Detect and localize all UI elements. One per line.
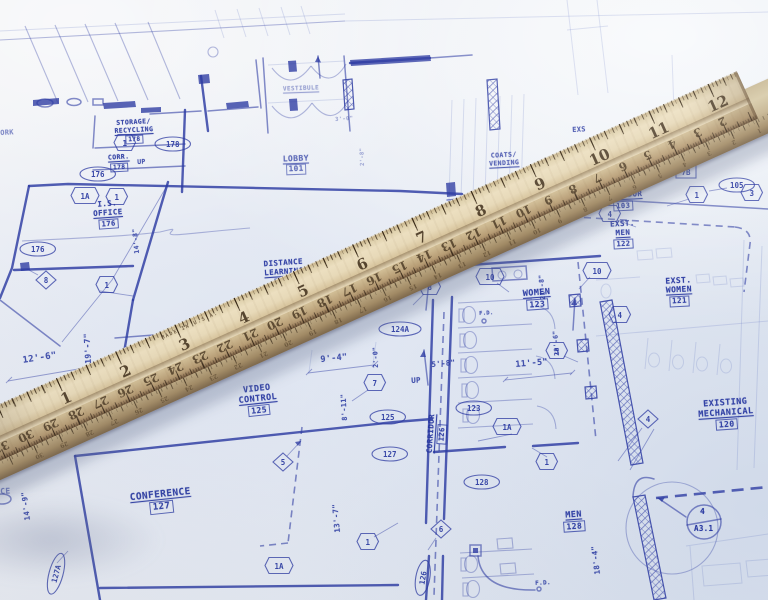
back-ruler-number: 21: [258, 349, 268, 359]
back-ruler-number: 26: [133, 406, 143, 416]
back-ruler-number: 2: [731, 138, 738, 146]
blueprint-photo-scene: STORAGE/RECYCLING178CORR.178I.S.OFFICE17…: [0, 0, 768, 600]
back-ruler-number: 19: [308, 327, 318, 337]
back-ruler-number: 17: [357, 304, 367, 314]
back-ruler-number: 10: [532, 226, 542, 236]
existing-rooms-faint: [596, 240, 768, 600]
back-ruler-number: 23: [208, 372, 218, 382]
hatched-existing-wall: [600, 300, 666, 600]
vestibule-walls: [150, 47, 350, 133]
back-ruler-number: 11: [507, 237, 517, 247]
back-ruler-number: 3: [706, 149, 713, 157]
back-ruler-number: 18: [333, 316, 343, 326]
back-ruler-number: 8: [581, 205, 588, 213]
back-ruler-number: 16: [382, 293, 392, 303]
back-ruler-number: 14: [432, 271, 442, 281]
back-ruler-number: 25: [158, 394, 168, 404]
back-ruler-number: 7: [606, 194, 613, 202]
back-ruler-number: 12: [482, 248, 492, 258]
back-ruler-number: 1: [756, 126, 763, 134]
men-room: [460, 538, 541, 598]
back-ruler-number: 4: [681, 160, 688, 168]
back-ruler-number: 15: [407, 282, 417, 292]
back-ruler-number: 22: [233, 361, 243, 371]
back-ruler-number: 30: [34, 451, 44, 461]
back-ruler-number: 20: [283, 338, 293, 348]
hatched-jambs: [343, 79, 500, 130]
back-ruler-number: 24: [183, 383, 193, 393]
back-ruler-number: 29: [59, 439, 69, 449]
upper-right-walls: [567, 0, 697, 114]
stairs: [25, 6, 310, 113]
storage-corr-walls: [93, 110, 185, 192]
back-ruler-number: 5: [656, 171, 663, 179]
top-edge-lines: [0, 12, 768, 40]
back-ruler-number: 28: [84, 428, 94, 438]
back-ruler-number: 27: [109, 417, 119, 427]
back-ruler-number: 6: [631, 183, 638, 191]
women-room: [434, 256, 600, 452]
lobby-top-wall: [350, 55, 472, 66]
back-ruler-number: 13: [457, 260, 467, 270]
back-ruler-number: 9: [556, 216, 563, 224]
